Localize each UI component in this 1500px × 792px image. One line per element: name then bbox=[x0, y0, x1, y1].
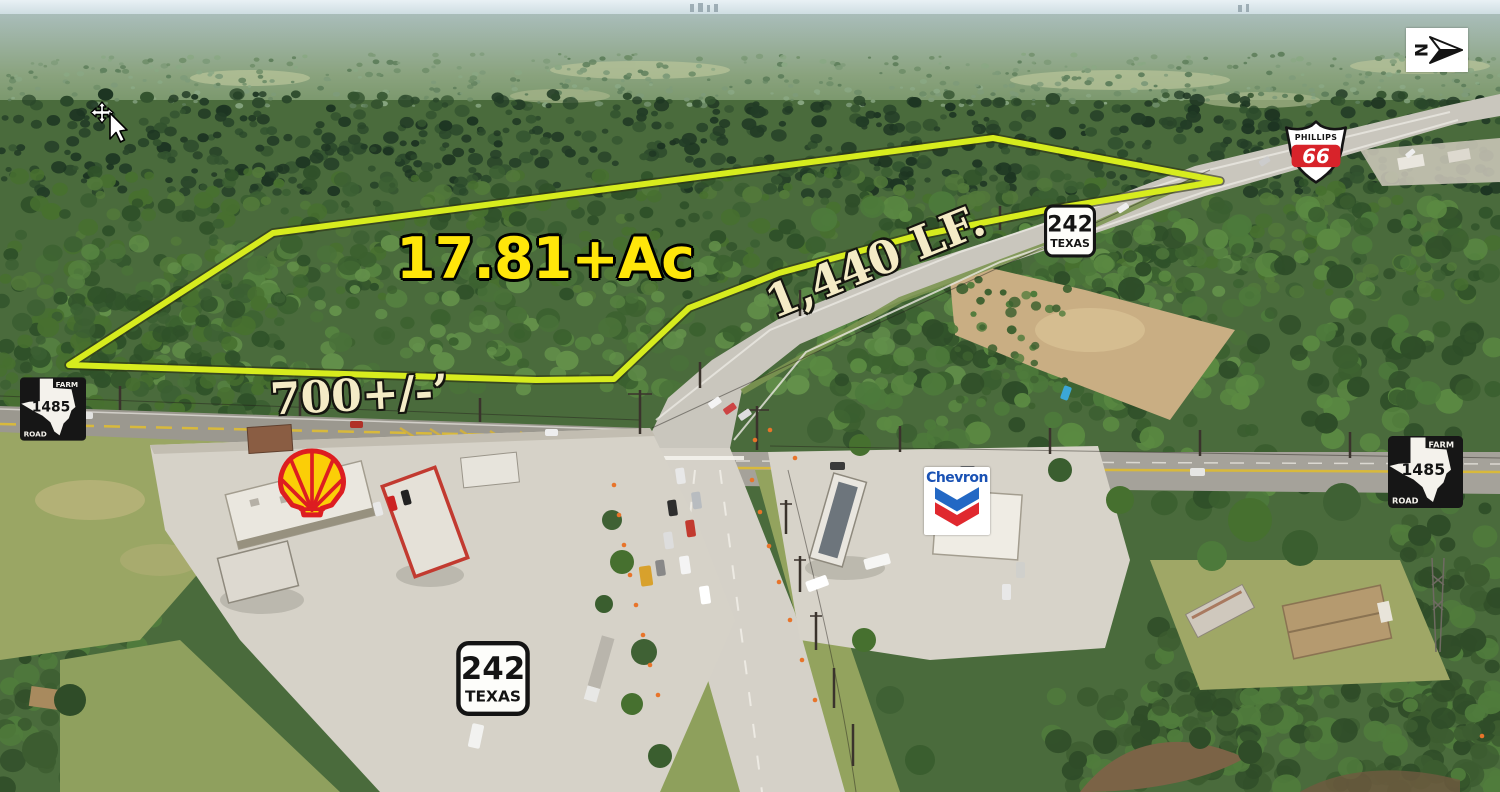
chevron-stripes-icon bbox=[928, 486, 986, 530]
svg-text:PHILLIPS: PHILLIPS bbox=[1295, 133, 1338, 142]
svg-text:FARM: FARM bbox=[56, 380, 79, 389]
tx-242-shield-bottom: 242 TEXAS bbox=[456, 641, 530, 716]
svg-text:FARM: FARM bbox=[1428, 439, 1454, 449]
svg-text:N: N bbox=[1410, 43, 1430, 57]
fm-1485-shield-right-icon: FARM 1485 ROAD bbox=[1386, 436, 1465, 508]
depth-label: 700+/-’ bbox=[269, 369, 449, 422]
phillips-66-logo: PHILLIPS 66 bbox=[1283, 119, 1349, 185]
acreage-label: 17.81+Ac bbox=[396, 231, 694, 288]
svg-text:1485: 1485 bbox=[32, 400, 71, 416]
fm-1485-shield-left-icon: FARM 1485 ROAD bbox=[20, 377, 86, 441]
parcel-outline bbox=[0, 0, 1500, 792]
tx-242-shield-bottom-icon: 242 TEXAS bbox=[456, 641, 530, 716]
tx-242-shield-top-icon: 242 TEXAS bbox=[1044, 204, 1096, 258]
svg-text:TEXAS: TEXAS bbox=[465, 687, 521, 705]
fm-1485-shield-left: FARM 1485 ROAD bbox=[20, 377, 86, 441]
svg-text:1485: 1485 bbox=[1401, 460, 1445, 479]
mouse-cursor bbox=[90, 101, 138, 147]
shell-pecten-icon bbox=[270, 446, 354, 528]
svg-text:ROAD: ROAD bbox=[1392, 496, 1419, 506]
fm-1485-shield-right: FARM 1485 ROAD bbox=[1386, 436, 1465, 508]
chevron-sign: Chevron bbox=[924, 467, 990, 535]
chevron-wordmark: Chevron bbox=[926, 470, 988, 486]
svg-text:242: 242 bbox=[461, 651, 525, 687]
tx-242-shield-top: 242 TEXAS bbox=[1044, 204, 1096, 258]
svg-text:ROAD: ROAD bbox=[24, 430, 47, 439]
aerial-listing-image: 17.81+Ac 1,440 LF. 700+/-’ 242 TEXAS 242… bbox=[0, 0, 1500, 792]
north-arrow-icon: N bbox=[1406, 28, 1468, 72]
svg-text:TEXAS: TEXAS bbox=[1050, 237, 1090, 250]
north-arrow: N bbox=[1406, 28, 1468, 72]
phillips-66-shield-icon: PHILLIPS 66 bbox=[1283, 119, 1349, 185]
move-cursor-icon bbox=[90, 101, 138, 147]
shell-logo bbox=[270, 446, 354, 528]
svg-text:66: 66 bbox=[1302, 145, 1330, 168]
svg-text:242: 242 bbox=[1047, 213, 1093, 238]
